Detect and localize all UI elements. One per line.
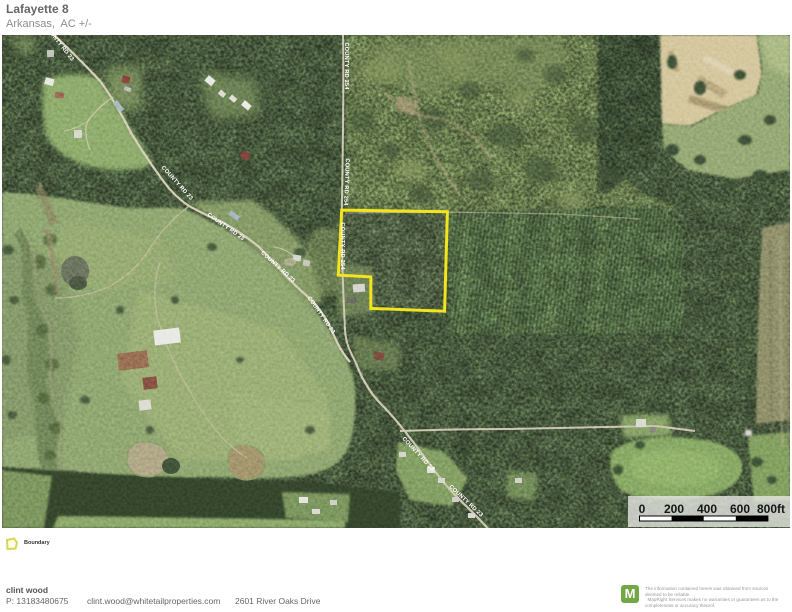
svg-text:200: 200 [664, 502, 684, 516]
svg-text:0: 0 [639, 502, 646, 516]
svg-text:400: 400 [697, 502, 717, 516]
svg-text:800ft: 800ft [757, 502, 785, 516]
svg-text:600: 600 [730, 502, 750, 516]
svg-text:COUNTY RD 254: COUNTY RD 254 [343, 42, 349, 90]
svg-text:COUNTY RD 254: COUNTY RD 254 [339, 222, 345, 270]
